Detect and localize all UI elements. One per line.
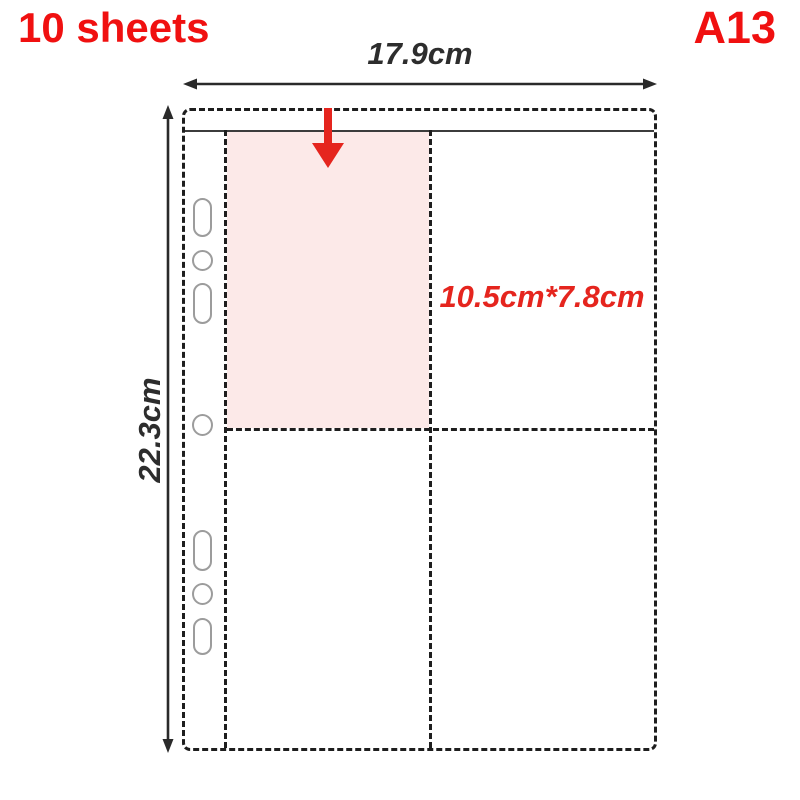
binder-hole-icon — [193, 618, 212, 655]
highlighted-pocket — [227, 132, 429, 428]
width-measure-arrow-icon — [182, 75, 658, 93]
binder-hole-icon — [192, 250, 213, 271]
insert-direction-arrowhead-icon — [312, 143, 344, 168]
pocket-page-outline: 10.5cm*7.8cm — [182, 108, 657, 751]
model-code-label: A13 — [693, 2, 776, 54]
binder-hole-icon — [193, 198, 212, 237]
pocket-row-divider — [227, 428, 654, 431]
top-seal-line — [185, 130, 654, 132]
binder-hole-icon — [193, 283, 212, 324]
binder-hole-icon — [193, 530, 212, 571]
pocket-column-divider — [429, 130, 432, 748]
pocket-size-label: 10.5cm*7.8cm — [439, 279, 644, 315]
height-measure-arrow-icon — [159, 104, 177, 754]
sheet-count-label: 10 sheets — [18, 4, 209, 52]
binder-hole-icon — [192, 414, 213, 436]
insert-direction-arrow-icon — [324, 108, 332, 144]
binding-strip-divider — [224, 130, 227, 748]
product-dimension-diagram: 10 sheets A13 17.9cm 22.3cm 10.5cm*7.8cm — [0, 0, 800, 800]
page-width-label: 17.9cm — [330, 36, 510, 72]
binder-hole-icon — [192, 583, 213, 605]
